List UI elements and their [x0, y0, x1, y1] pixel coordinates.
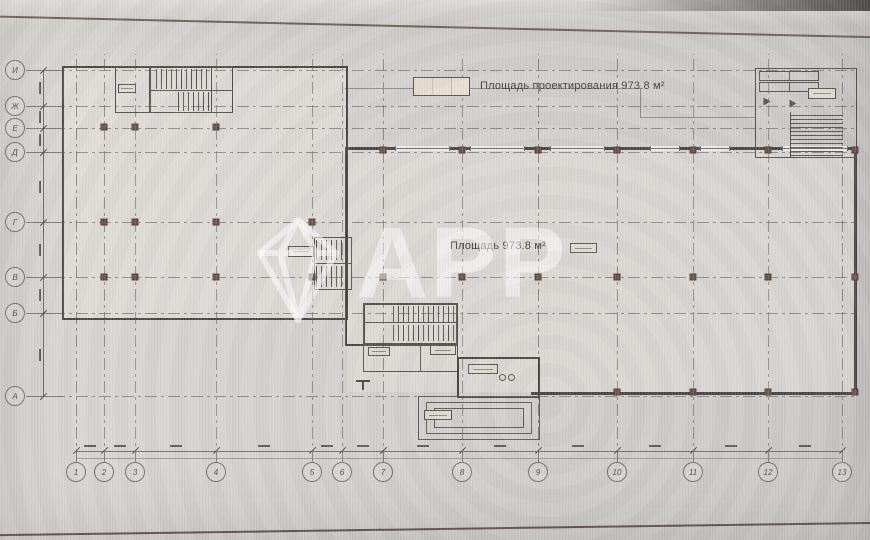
wall-ledge [345, 344, 363, 346]
axis-bubble-bottom: 2 [94, 462, 114, 482]
axis-leader [76, 451, 77, 462]
axis-bubble-bottom: 7 [373, 462, 393, 482]
canopy-connector [640, 88, 641, 117]
label-box-text-mark [429, 415, 447, 416]
column-marker [132, 219, 139, 226]
axis-bubble-bottom: 9 [528, 462, 548, 482]
dimension-value-mark [417, 445, 429, 447]
shelf-box [759, 71, 819, 81]
label-box-text-mark [121, 88, 132, 89]
door-circle-symbol [499, 374, 506, 381]
stair-treads [178, 92, 210, 111]
axis-leader [135, 451, 136, 462]
column-marker [101, 274, 108, 281]
label-box-text-mark [372, 351, 386, 352]
column-marker [101, 124, 108, 131]
stair-treads [791, 112, 843, 156]
bottom-dimension-line-2 [76, 458, 843, 459]
axis-leader [383, 451, 384, 462]
dimension-value-mark [39, 244, 41, 256]
dimension-value-mark [39, 349, 41, 361]
dimension-value-mark [799, 445, 811, 447]
dimension-value-mark [572, 445, 584, 447]
axis-bubble-left: Б [5, 303, 25, 323]
label-box-text-mark [473, 369, 493, 370]
dimension-value-mark [258, 445, 270, 447]
column-marker [765, 147, 772, 154]
column-marker [852, 389, 859, 396]
column-marker [852, 274, 859, 281]
axis-leader [768, 451, 769, 462]
left-dimension-line [43, 70, 44, 397]
axis-bubble-bottom: 1 [66, 462, 86, 482]
axis-bubble-bottom: 4 [206, 462, 226, 482]
column-marker [459, 147, 466, 154]
axis-bubble-left: А [5, 386, 25, 406]
column-marker [101, 219, 108, 226]
label-box [808, 88, 836, 99]
axis-bubble-bottom: 11 [683, 462, 703, 482]
stair-divider [211, 66, 212, 113]
column-marker [765, 274, 772, 281]
dimension-value-mark [39, 82, 41, 94]
dimension-value-mark [39, 111, 41, 123]
right-block-right-wall [854, 147, 857, 395]
column-marker [213, 124, 220, 131]
axis-bubble-bottom: 13 [832, 462, 852, 482]
label-box [468, 364, 498, 374]
stair-treads [156, 69, 208, 89]
room-divider [420, 345, 421, 372]
dimension-value-mark [357, 445, 369, 447]
stair-divider [790, 112, 791, 158]
photo-of-cad-screen: 12345678910111213ИЖЕДГВБА Площадь проект… [0, 0, 870, 540]
window [470, 146, 525, 151]
dimension-value-mark [39, 134, 41, 146]
column-marker [614, 147, 621, 154]
column-marker [132, 274, 139, 281]
axis-bubble-left: Ж [5, 96, 25, 116]
dimension-value-mark [84, 445, 96, 447]
axis-leader [538, 451, 539, 462]
axis-leader [462, 451, 463, 462]
watermark: APP [248, 205, 628, 335]
door-symbol [764, 98, 771, 106]
survey-mark [362, 380, 364, 390]
axis-leader [342, 451, 343, 462]
axis-leader [693, 451, 694, 462]
axis-bubble-bottom: 3 [125, 462, 145, 482]
axis-bubble-bottom: 12 [758, 462, 778, 482]
label-box [118, 84, 136, 93]
watermark-text: APP [356, 213, 568, 313]
dimension-value-mark [39, 181, 41, 193]
dimension-value-mark [725, 445, 737, 447]
axis-leader [617, 451, 618, 462]
column-marker [213, 274, 220, 281]
door-symbol [790, 100, 797, 108]
door-circle-symbol [508, 374, 515, 381]
dimension-value-mark [494, 445, 506, 447]
label-box [430, 345, 456, 355]
dimension-value-mark [649, 445, 661, 447]
column-marker [690, 274, 697, 281]
bezel-corner-shadow [580, 0, 870, 11]
label-box-text-mark [813, 93, 831, 94]
axis-leader [216, 451, 217, 462]
dimension-value-mark [170, 445, 182, 447]
dimension-value-mark [39, 289, 41, 301]
axis-bubble-left: Е [5, 118, 25, 138]
label-box-text-mark [435, 350, 452, 351]
diamond-logo-icon [248, 210, 348, 330]
axis-bubble-bottom: 5 [302, 462, 322, 482]
window [700, 146, 730, 151]
window [395, 146, 450, 151]
axis-bubble-bottom: 10 [607, 462, 627, 482]
column-marker [690, 147, 697, 154]
axis-leader [312, 451, 313, 462]
column-marker [535, 147, 542, 154]
axis-bubble-left: И [5, 60, 25, 80]
dimension-value-mark [321, 445, 333, 447]
axis-bubble-left: В [5, 267, 25, 287]
window [650, 146, 680, 151]
dimension-value-mark [114, 445, 126, 447]
screen-edge-bottom [0, 522, 870, 537]
column-marker [380, 147, 387, 154]
legend-swatch [413, 77, 470, 96]
axis-bubble-bottom: 8 [452, 462, 472, 482]
axis-bubble-left: Д [5, 142, 25, 162]
label-box [368, 347, 390, 356]
window [550, 146, 605, 151]
column-marker [765, 389, 772, 396]
axis-leader [104, 451, 105, 462]
stair-landing-line [150, 90, 233, 91]
label-box [424, 410, 452, 420]
column-marker [213, 219, 220, 226]
column-marker [132, 124, 139, 131]
column-marker [852, 147, 859, 154]
legend-label: Площадь проектирования 973.8 м² [480, 80, 665, 92]
axis-leader [842, 451, 843, 462]
column-marker [690, 389, 697, 396]
axis-bubble-bottom: 6 [332, 462, 352, 482]
canopy-line [640, 117, 755, 118]
grid-line-vertical [693, 54, 694, 462]
column-marker [614, 389, 621, 396]
axis-bubble-left: Г [5, 212, 25, 232]
